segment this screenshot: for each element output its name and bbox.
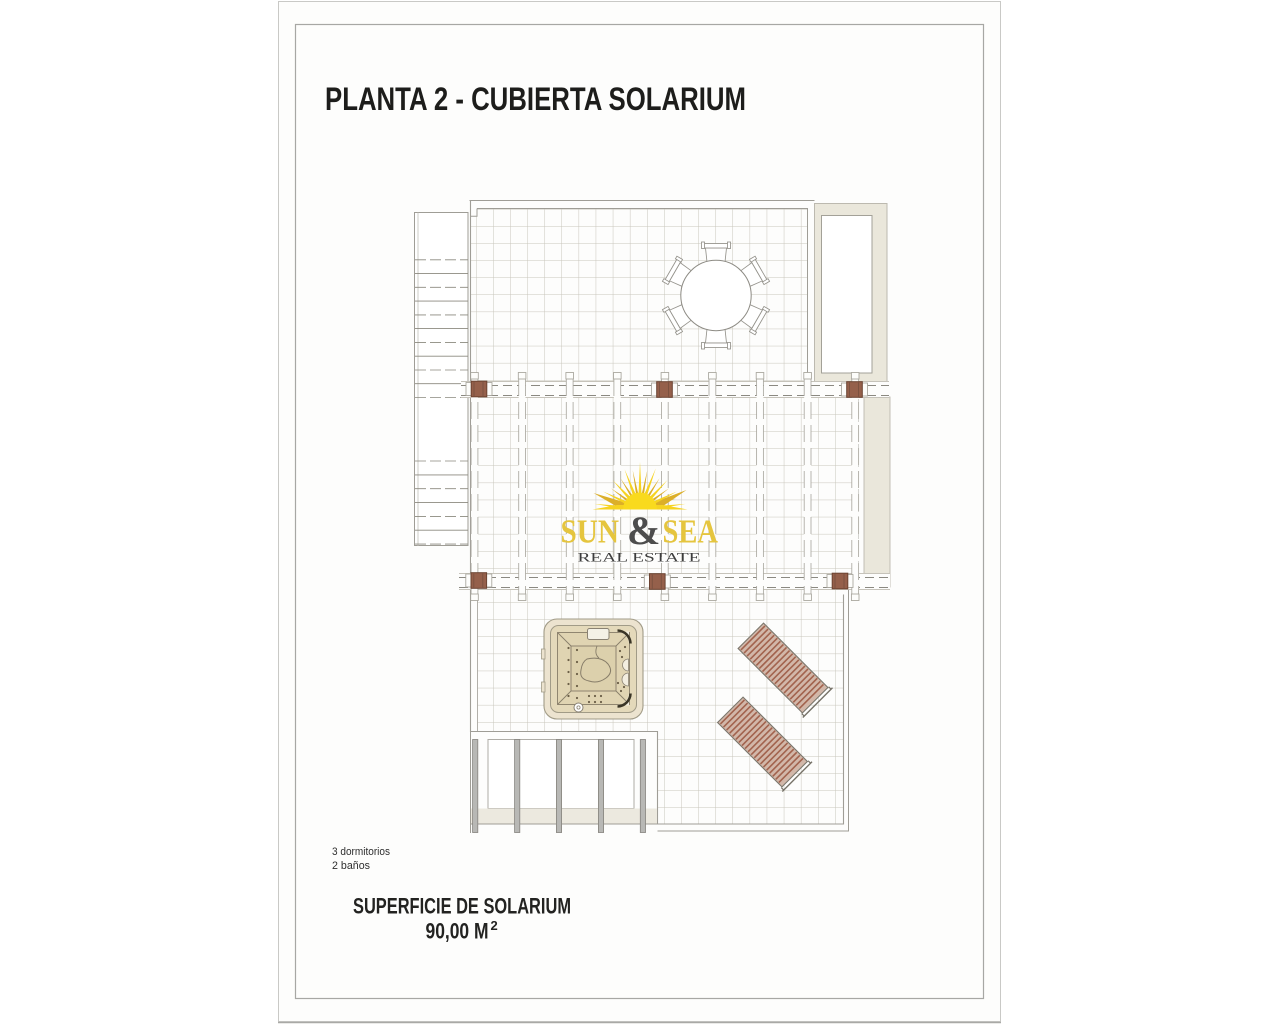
svg-text:2: 2 bbox=[491, 918, 498, 933]
svg-text:PLANTA 2 - CUBIERTA SOLARIUM: PLANTA 2 - CUBIERTA SOLARIUM bbox=[325, 81, 746, 117]
svg-text:2 baños: 2 baños bbox=[332, 860, 370, 872]
svg-text:3 dormitorios: 3 dormitorios bbox=[332, 846, 390, 858]
svg-text:SUN: SUN bbox=[561, 514, 620, 551]
svg-text:SUPERFICIE DE SOLARIUM: SUPERFICIE DE SOLARIUM bbox=[353, 894, 571, 919]
svg-text:SEA: SEA bbox=[663, 514, 719, 551]
svg-text:&: & bbox=[627, 508, 660, 553]
svg-text:90,00 M: 90,00 M bbox=[426, 919, 489, 944]
svg-text:REAL ESTATE: REAL ESTATE bbox=[578, 550, 701, 565]
